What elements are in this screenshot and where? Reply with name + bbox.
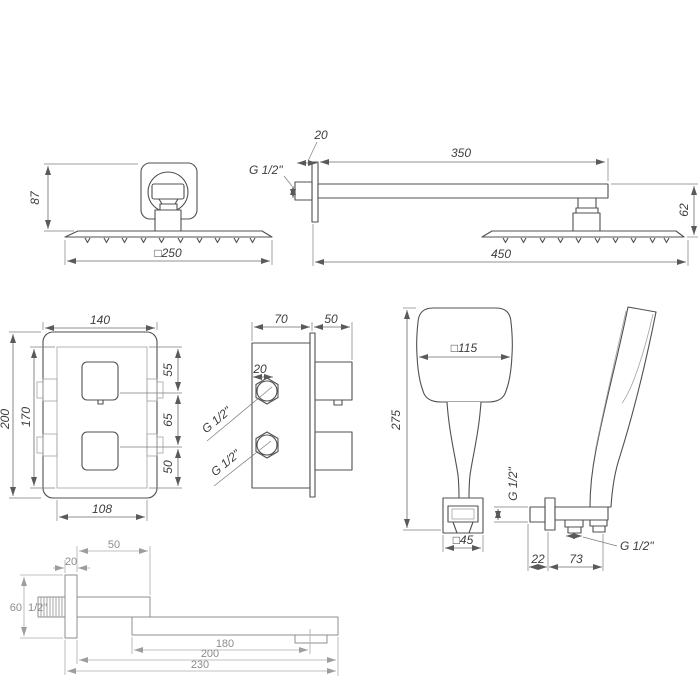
wand-socket <box>590 520 607 526</box>
dim-label-50: 50 <box>108 539 120 551</box>
dim-label-70: 70 <box>274 312 288 326</box>
dim-label-50: 50 <box>324 312 338 326</box>
head-ring <box>576 208 598 213</box>
upper-knob <box>82 362 118 400</box>
dim-label-65: 65 <box>161 413 175 427</box>
dim-label-20: 20 <box>65 556 77 568</box>
thread-label-lower: G 1/2" <box>208 446 243 479</box>
dim-width-250: □250 <box>65 240 272 265</box>
joint-neck <box>159 199 178 204</box>
dim-label-350: 350 <box>451 146 471 160</box>
holder-wall-flange <box>545 498 555 530</box>
joint-ring <box>160 204 177 210</box>
wall-flange <box>312 162 318 222</box>
dim-inner-height-170: 170 <box>19 347 55 488</box>
dim-holder-45: □45 <box>443 533 483 552</box>
thread-label-upper: G 1/2" <box>199 403 234 436</box>
dim-label-73: 73 <box>569 552 583 566</box>
shower-head-plate <box>65 231 272 237</box>
ball-joint-band <box>152 184 184 199</box>
hand-shower-wand-profile <box>590 307 656 507</box>
outlet-nut <box>565 520 583 527</box>
dim-drop-62: 62 <box>611 184 698 237</box>
dim-plate-20: 20 <box>53 556 90 573</box>
dim-label-108: 108 <box>92 502 112 516</box>
thread-label-half-inch: 1/2" <box>28 602 47 614</box>
thread-label-wall: G 1/2" <box>506 466 520 500</box>
rain-head-plate <box>482 231 684 237</box>
nozzle-marks <box>85 238 255 243</box>
outlet-thread-callout: G 1/2" <box>566 536 654 553</box>
hand-shower-handle <box>447 402 481 498</box>
dim-label-250: □250 <box>154 246 182 260</box>
dim-label-22: 22 <box>530 552 545 566</box>
dim-label-170: 170 <box>19 407 33 427</box>
head-connector <box>578 198 596 208</box>
mixer-front-view: 140 200 170 55 65 50 <box>0 313 182 521</box>
dim-label-275: 275 <box>389 410 403 431</box>
handle-outlet-cone <box>453 522 473 533</box>
overhead-shower-front-view: 87 □250 <box>28 163 272 265</box>
dim-label-20: 20 <box>252 362 267 376</box>
wall-thread-callout: G 1/2" <box>494 466 528 522</box>
upper-knob-side <box>315 362 352 400</box>
handle-nut <box>448 506 478 522</box>
dim-label-20: 20 <box>313 128 328 142</box>
dim-label-87: 87 <box>28 190 42 205</box>
mixer-side-view: 70 50 20 G 1/2" G 1/2" <box>199 312 352 497</box>
dim-right-segments: 55 65 50 <box>120 347 182 488</box>
outlet-thread <box>568 527 581 533</box>
spout-body <box>132 617 338 635</box>
spout-side-view: 50 20 60 1/2" 180 200 2 <box>10 539 338 676</box>
dim-plate-20: 20 <box>297 128 328 163</box>
holder-inlet-connector <box>530 507 545 522</box>
dim-22-73: 22 73 <box>528 524 603 571</box>
dim-label-140: 140 <box>90 313 110 327</box>
holder-arm <box>555 507 608 520</box>
dim-label-200: 200 <box>0 409 12 430</box>
dim-label-62: 62 <box>677 203 691 217</box>
dim-width-140: 140 <box>43 313 157 330</box>
dim-upper-reach-50: 50 <box>77 539 150 595</box>
lower-knob <box>82 432 118 470</box>
dim-arm-350: 350 <box>320 146 608 181</box>
dim-label-60: 60 <box>10 602 22 614</box>
dim-height-87: 87 <box>28 164 138 231</box>
spout-outlet <box>295 635 327 643</box>
mixer-face-plate <box>43 332 157 498</box>
thread-label-outlet: G 1/2" <box>620 539 654 553</box>
hand-shower-head <box>417 308 513 402</box>
spout-wall-plate <box>65 575 77 638</box>
nozzle-marks <box>503 238 669 243</box>
lower-knob-side <box>315 432 352 470</box>
thread-callout: G 1/2" <box>249 163 293 198</box>
thread-label: G 1/2" <box>249 163 283 177</box>
wall-holder-side-view: G 1/2" G 1/2" 22 73 <box>494 307 656 571</box>
dim-label-115: □115 <box>451 341 478 355</box>
dim-label-55: 55 <box>161 363 175 377</box>
shower-arm-bar <box>318 184 608 198</box>
dim-outlet-reach-180: 180 <box>132 637 308 654</box>
dim-label-50: 50 <box>161 460 175 474</box>
spout-upper-arm <box>77 597 150 617</box>
dim-label-450: 450 <box>491 247 511 261</box>
hand-shower-front-view: □115 275 □45 <box>389 308 512 552</box>
mixer-wall-plate <box>310 333 315 497</box>
upper-knob-tab <box>334 400 342 405</box>
head-block <box>573 213 600 232</box>
head-stem <box>155 210 181 232</box>
dim-inner-width-108: 108 <box>57 500 147 521</box>
technical-drawing: 87 □250 G 1/2" 20 <box>0 0 700 700</box>
drawing-canvas: 87 □250 G 1/2" 20 <box>0 0 700 700</box>
thread-connector <box>295 182 312 200</box>
upper-knob-notch <box>98 400 103 404</box>
dim-total-450: 450 <box>313 224 688 266</box>
shower-arm-side-view: G 1/2" 20 350 62 450 <box>249 128 698 266</box>
dim-label-230: 230 <box>191 659 209 671</box>
wand-socket-thread <box>593 526 605 532</box>
dim-label-45: □45 <box>453 533 474 547</box>
